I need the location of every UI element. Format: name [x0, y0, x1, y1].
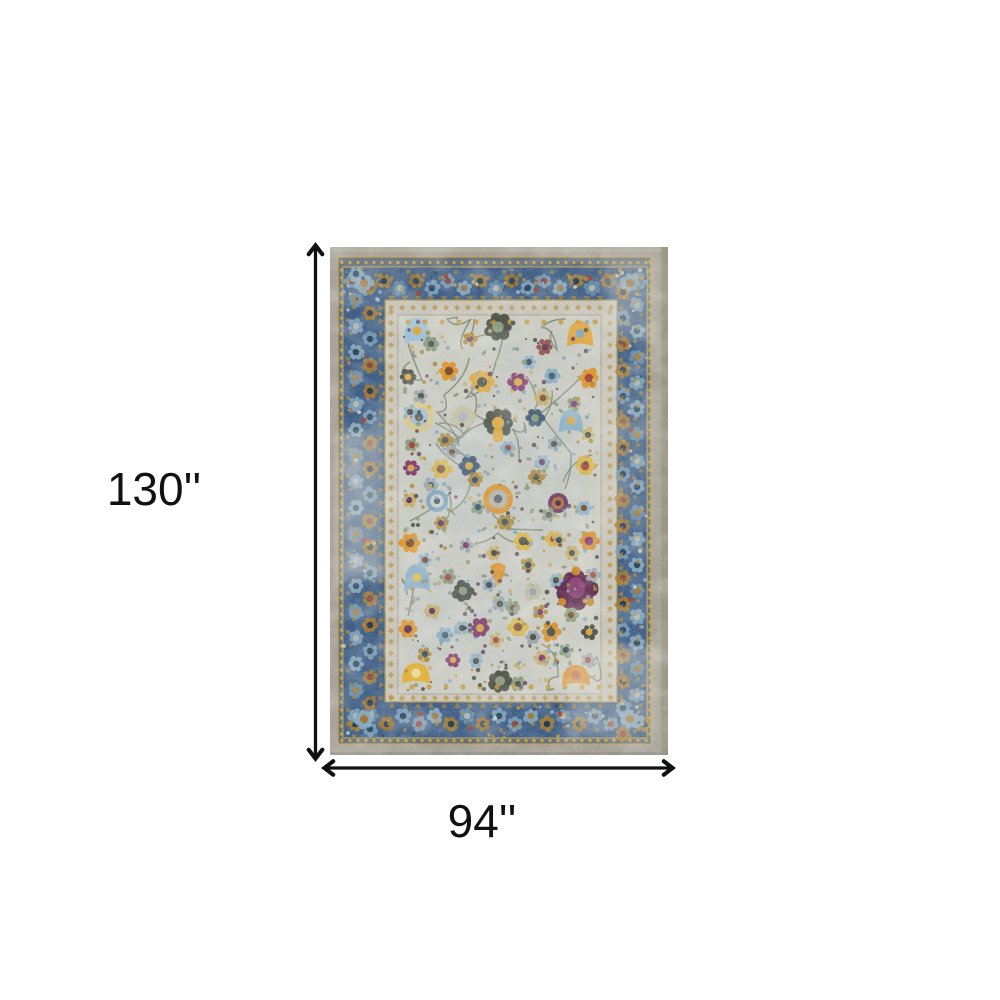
svg-text:94'': 94'': [448, 795, 517, 847]
svg-text:130'': 130'': [107, 463, 201, 515]
